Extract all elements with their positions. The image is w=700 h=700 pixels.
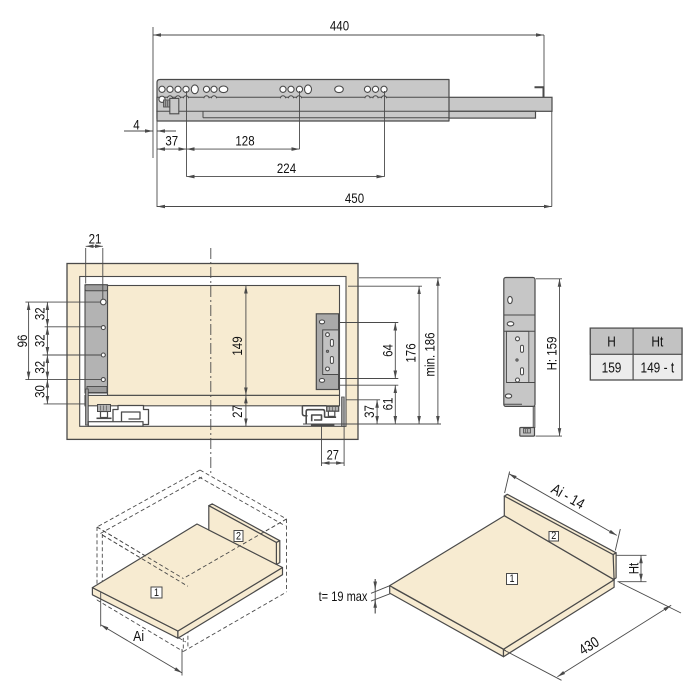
svg-text:21: 21 — [89, 230, 102, 246]
svg-text:159: 159 — [602, 359, 622, 375]
svg-text:4: 4 — [133, 116, 139, 132]
svg-text:Ht: Ht — [651, 333, 663, 349]
svg-text:27: 27 — [229, 405, 245, 418]
svg-text:2: 2 — [236, 531, 241, 543]
svg-text:176: 176 — [403, 343, 419, 362]
svg-text:224: 224 — [277, 160, 296, 176]
svg-text:32: 32 — [31, 361, 47, 374]
svg-text:1: 1 — [154, 587, 159, 599]
svg-text:149: 149 — [229, 336, 245, 355]
svg-text:128: 128 — [235, 132, 254, 148]
svg-text:430: 430 — [576, 633, 602, 658]
svg-text:96: 96 — [14, 335, 30, 348]
svg-text:H: H — [607, 333, 616, 349]
svg-text:27: 27 — [327, 448, 339, 463]
svg-text:32: 32 — [31, 334, 47, 347]
svg-text:440: 440 — [330, 17, 349, 33]
svg-text:450: 450 — [345, 190, 364, 206]
svg-text:Ht: Ht — [625, 562, 641, 574]
svg-text:32: 32 — [31, 307, 47, 320]
svg-text:t= 19 max: t= 19 max — [319, 589, 369, 604]
svg-text:Ai: Ai — [133, 628, 144, 644]
svg-text:min. 186: min. 186 — [421, 332, 437, 376]
svg-text:H: 159: H: 159 — [544, 337, 560, 371]
svg-text:37: 37 — [361, 405, 377, 418]
svg-text:37: 37 — [165, 132, 178, 148]
svg-text:1: 1 — [509, 573, 514, 585]
svg-text:30: 30 — [31, 385, 47, 398]
svg-text:64: 64 — [379, 344, 395, 357]
svg-text:149 - t: 149 - t — [640, 359, 674, 375]
svg-text:61: 61 — [379, 398, 395, 411]
svg-text:2: 2 — [551, 530, 556, 542]
